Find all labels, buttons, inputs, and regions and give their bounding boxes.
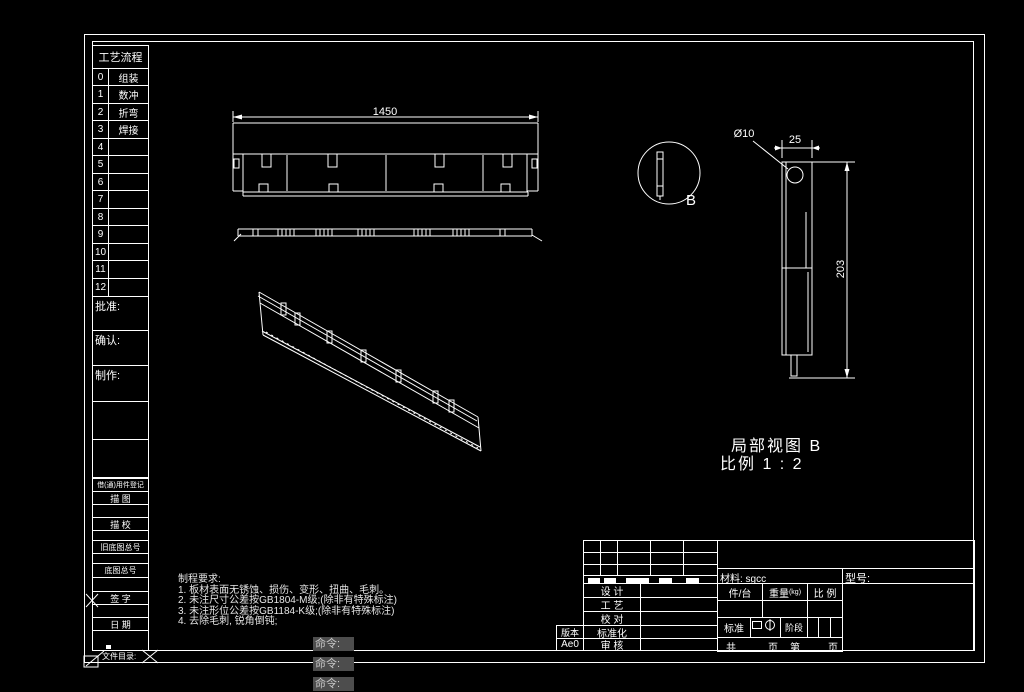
process-label: 工 艺: [583, 597, 641, 612]
notes-title: 制程要求:: [178, 575, 458, 586]
empty-box: [92, 604, 149, 618]
empty-box: [92, 401, 149, 440]
command-prompt-input[interactable]: 命令:: [313, 677, 354, 691]
weight-value: [762, 600, 808, 618]
confirm-box: 确认:: [92, 330, 149, 366]
process-row-label: [108, 225, 149, 244]
process-row-label: 折弯: [108, 103, 149, 121]
process-row-num: 9: [92, 225, 109, 244]
version-label: 版本: [556, 625, 584, 639]
standardize-value: [640, 625, 718, 639]
empty-box: [92, 504, 149, 518]
drawing-no-label: 底图总号: [92, 563, 149, 578]
approve-box: 批准:: [92, 296, 149, 331]
model-cell: 型号:: [842, 568, 975, 584]
process-row-label: 组装: [108, 68, 149, 86]
version-value: Ae0: [556, 638, 584, 651]
process-row-label: [108, 208, 149, 226]
dim-203-text: 203: [835, 254, 847, 284]
command-prompt-history-2[interactable]: 命令:: [313, 657, 354, 671]
confirm-label: 确认:: [93, 331, 148, 349]
proof-value: [640, 611, 718, 626]
trace-check-label: 描 校: [92, 517, 149, 531]
process-notes: 制程要求: 1. 板材表面无锈蚀、损伤、变形、扭曲、毛刺。 2. 未注尺寸公差按…: [178, 575, 458, 628]
process-row-num: 0: [92, 68, 109, 86]
command-prompt-history-1[interactable]: 命令:: [313, 637, 354, 651]
detail-mark-b: B: [686, 192, 696, 209]
notes-line: 4. 去除毛刺, 锐角倒钝;: [178, 617, 458, 628]
weight-label: 重量: [769, 585, 789, 600]
file-dir-label: 文件目录:: [102, 651, 136, 662]
process-row-label: [108, 278, 149, 297]
design-label: 设 计: [583, 583, 641, 598]
cad-application-window: 工艺流程 0 组装 1 数冲 2 折弯 3 焊接 4 5 6 7 8 9 10 …: [0, 0, 1024, 692]
scale-header: 比 例: [807, 583, 843, 601]
process-row-label: [108, 138, 149, 156]
pages-row: 共 页 第 页: [717, 637, 843, 652]
process-table-title: 工艺流程: [92, 45, 149, 69]
dim-25-text: 25: [784, 134, 806, 146]
audit-value: [640, 638, 718, 651]
process-row-num: 10: [92, 243, 109, 261]
model-value-box: [842, 583, 975, 651]
approve-label: 批准:: [93, 297, 148, 315]
date-label: 日 期: [92, 617, 149, 631]
proof-label: 校 对: [583, 611, 641, 626]
weight-unit: (kg): [789, 589, 801, 596]
dim-dia10-text: Ø10: [729, 128, 759, 140]
weight-header: 重量(kg): [762, 583, 808, 601]
empty-box: [92, 439, 149, 478]
model-label: 型号:: [843, 569, 974, 584]
process-row-num: 4: [92, 138, 109, 156]
process-row-label: 焊接: [108, 120, 149, 139]
make-label: 制作:: [93, 366, 148, 384]
old-drawing-no-label: 旧底图总号: [92, 540, 149, 554]
process-row-label: [108, 173, 149, 191]
scale-value: [807, 600, 843, 618]
projection-symbol-cell: [750, 617, 781, 638]
process-row-num: 12: [92, 278, 109, 297]
first-angle-projection-icon: [751, 618, 778, 631]
material-label: 材料: sgcc: [718, 569, 842, 584]
make-box: 制作:: [92, 365, 149, 402]
pages-total-label: 共: [726, 639, 736, 652]
process-row-label: [108, 243, 149, 261]
notes-line: 2. 未注尺寸公差按GB1804-M级;(除非有特殊标注): [178, 596, 458, 607]
material-cell: 材料: sgcc: [717, 568, 843, 584]
process-row-num: 8: [92, 208, 109, 226]
trace-label: 描 图: [92, 491, 149, 505]
pages-no-label: 第: [790, 639, 800, 652]
title-block-top-box: [717, 540, 975, 569]
process-row-num: 3: [92, 120, 109, 139]
process-row-num: 7: [92, 190, 109, 209]
pages-page-label: 页: [768, 639, 778, 652]
process-row-num: 1: [92, 85, 109, 104]
sign-label: 签 字: [92, 591, 149, 605]
pcs-per-unit-header: 件/台: [717, 583, 763, 601]
process-row-num: 2: [92, 103, 109, 121]
standard-label: 标准: [717, 617, 751, 638]
pcs-per-unit-value: [717, 600, 763, 618]
process-row-label: [108, 190, 149, 209]
process-row-num: 5: [92, 155, 109, 174]
process-row-num: 11: [92, 260, 109, 279]
design-value: [640, 583, 718, 598]
process-row-label: [108, 260, 149, 279]
standardize-label: 标准化: [583, 625, 641, 639]
dim-1450-text: 1450: [363, 106, 407, 118]
process-value: [640, 597, 718, 612]
empty-box: [92, 577, 149, 592]
empty-box: [92, 630, 149, 651]
audit-label: 审 核: [583, 638, 641, 651]
process-row-label: 数冲: [108, 85, 149, 104]
process-row-label: [108, 155, 149, 174]
process-row-num: 6: [92, 173, 109, 191]
stage-label: 阶段: [780, 617, 808, 638]
detail-caption-scale: 比例 1 : 2: [720, 450, 804, 474]
register-label: 借(通)用件登记: [92, 478, 149, 492]
pages-page2-label: 页: [828, 639, 838, 652]
